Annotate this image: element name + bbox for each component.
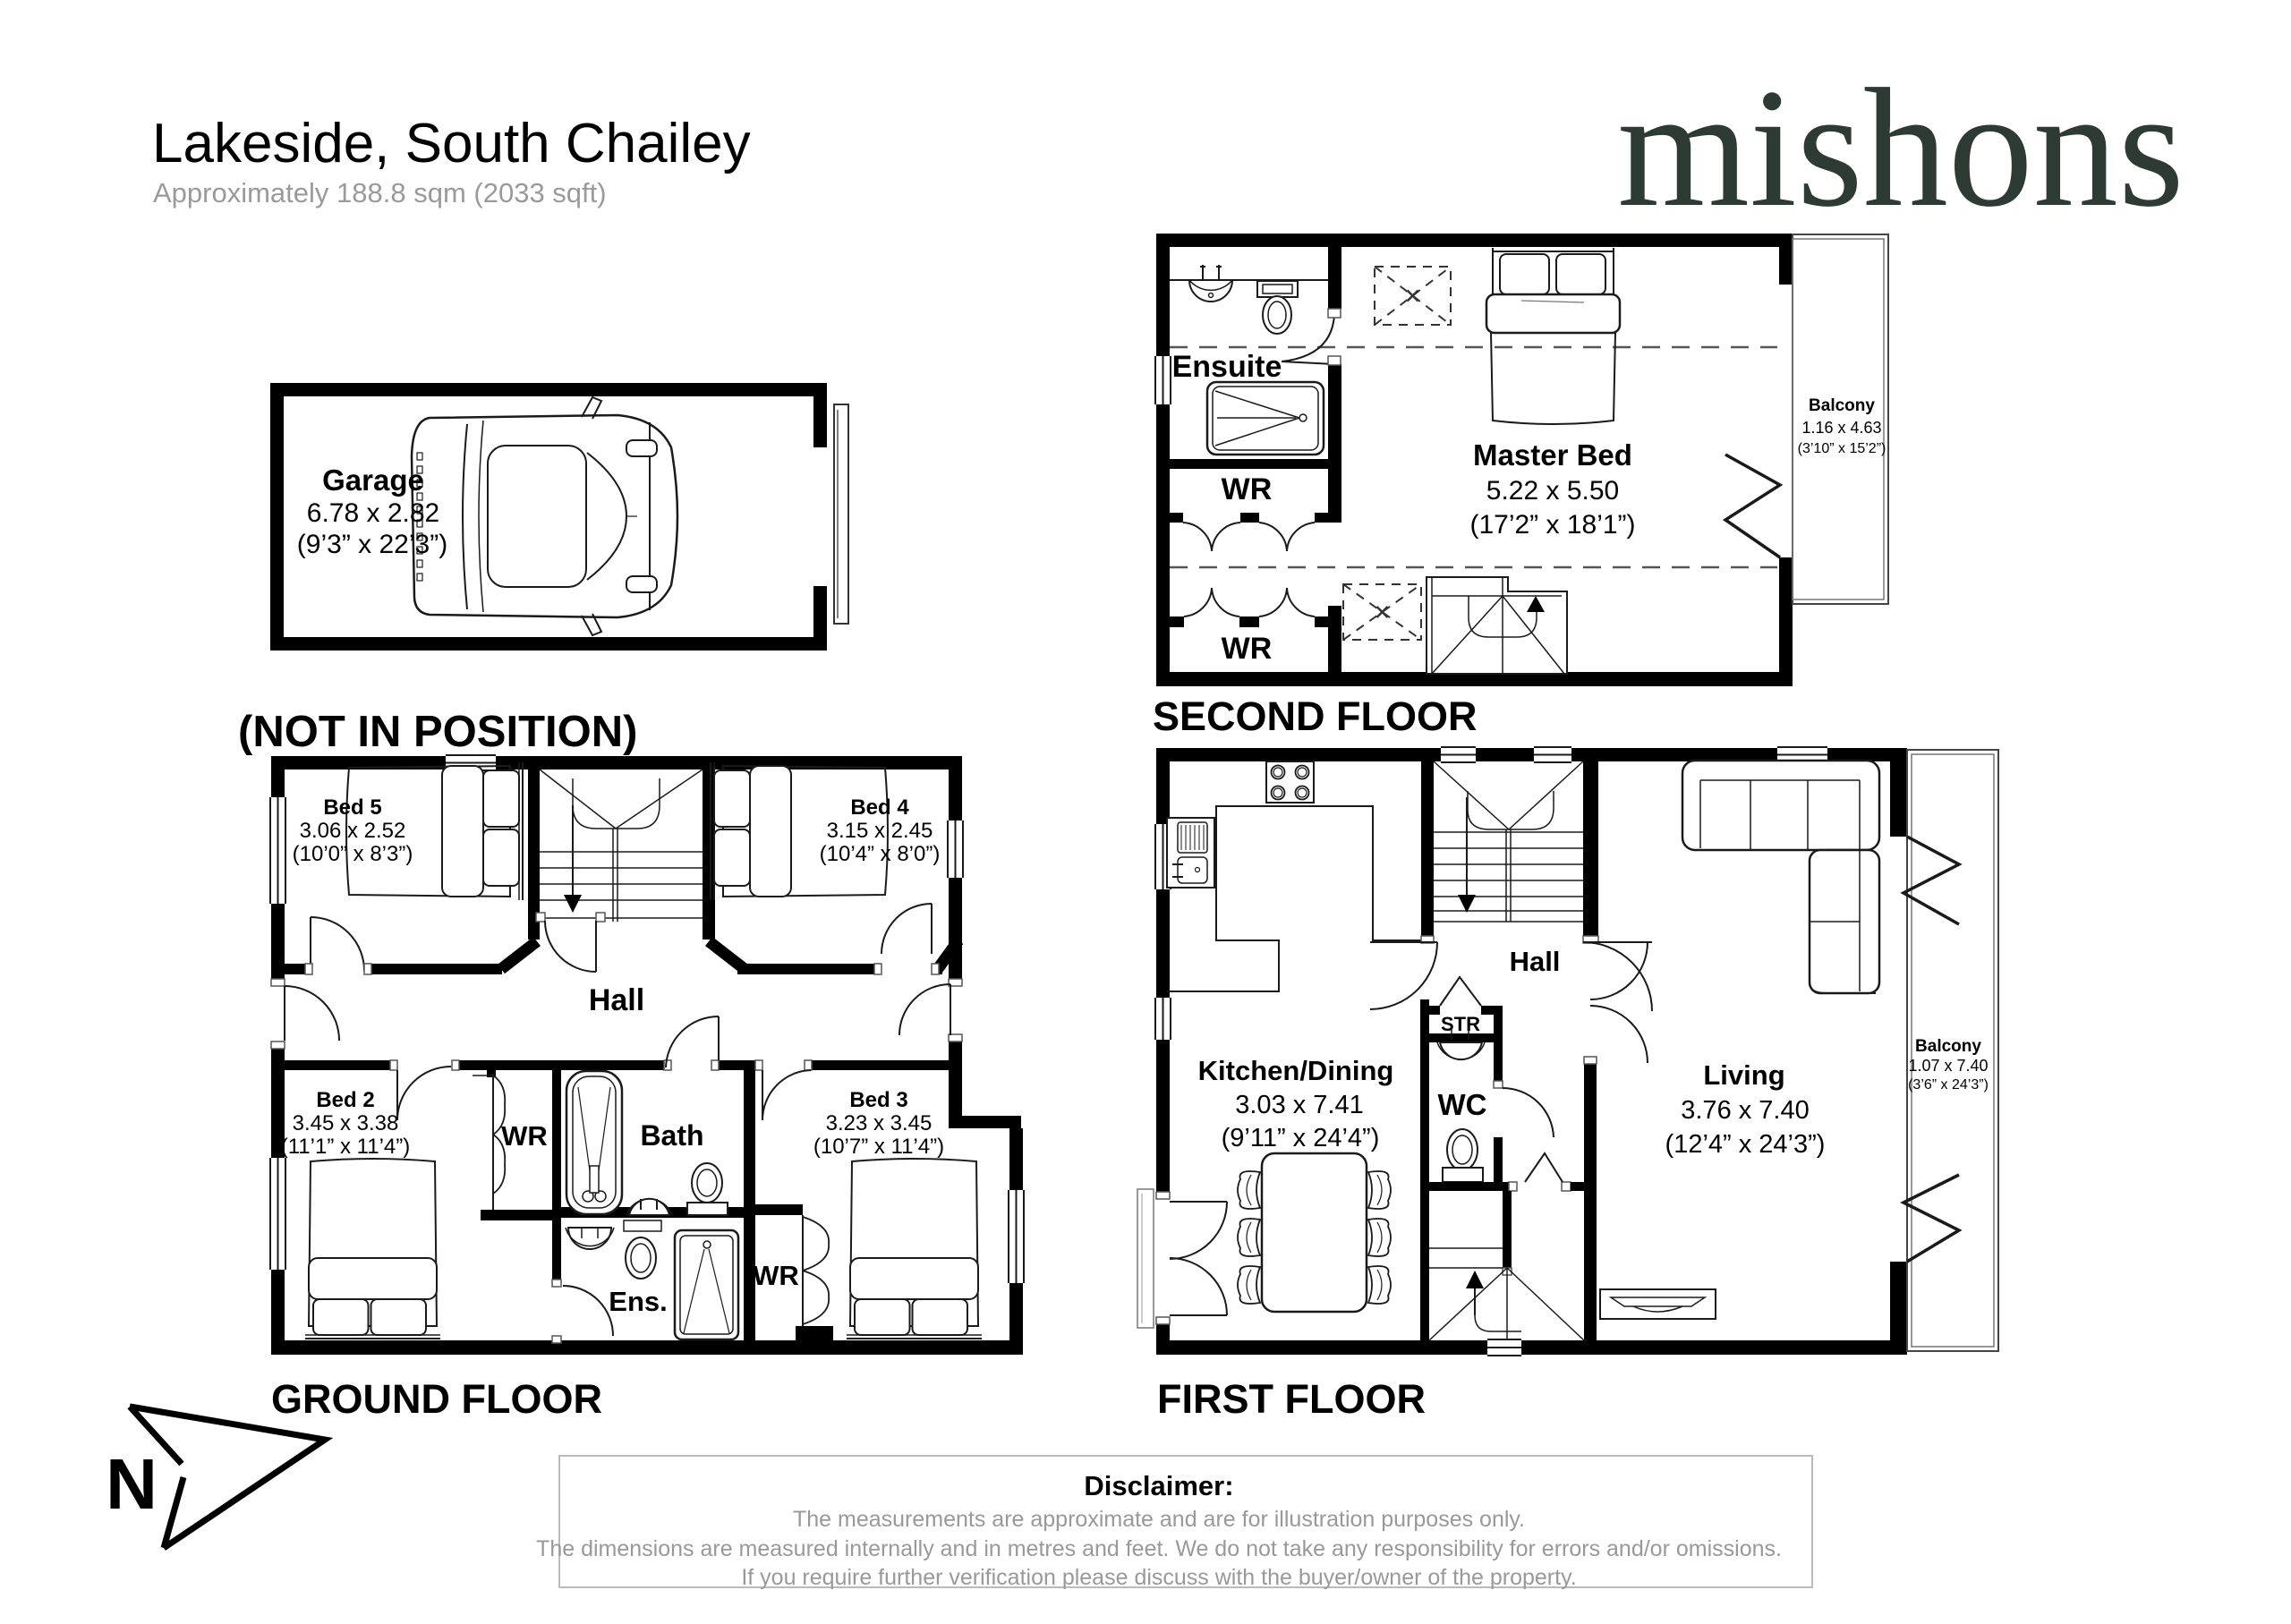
svg-text:6.78 x 2.82: 6.78 x 2.82 <box>307 498 439 528</box>
svg-text:Kitchen/Dining: Kitchen/Dining <box>1198 1055 1394 1086</box>
svg-text:(12’4” x 24’3”): (12’4” x 24’3”) <box>1665 1130 1826 1159</box>
svg-text:(10’4” x 8’0”): (10’4” x 8’0”) <box>820 842 941 866</box>
svg-text:FIRST FLOOR: FIRST FLOOR <box>1157 1376 1426 1422</box>
svg-text:WR: WR <box>1222 632 1273 666</box>
svg-text:3.06 x 2.52: 3.06 x 2.52 <box>300 819 406 843</box>
svg-text:Hall: Hall <box>589 983 644 1017</box>
svg-text:WR: WR <box>501 1120 548 1152</box>
svg-text:(10’7” x 11’4”): (10’7” x 11’4”) <box>813 1135 944 1159</box>
svg-text:If you require further verific: If you require further verification plea… <box>741 1565 1576 1590</box>
svg-text:(10’0” x 8’3”): (10’0” x 8’3”) <box>293 842 413 866</box>
svg-text:Bath: Bath <box>640 1119 703 1152</box>
svg-text:Bed 4: Bed 4 <box>850 795 909 820</box>
svg-text:STR: STR <box>1441 1013 1480 1035</box>
svg-text:5.22 x 5.50: 5.22 x 5.50 <box>1486 476 1619 506</box>
svg-text:3.23 x 3.45: 3.23 x 3.45 <box>826 1111 933 1135</box>
svg-text:(11’1” x 11’4”): (11’1” x 11’4”) <box>281 1135 411 1159</box>
svg-text:3.76 x 7.40: 3.76 x 7.40 <box>1681 1096 1810 1125</box>
svg-text:Bed 2: Bed 2 <box>316 1088 374 1112</box>
svg-text:Bed 3: Bed 3 <box>849 1088 907 1112</box>
svg-text:1.16 x 4.63: 1.16 x 4.63 <box>1801 419 1881 437</box>
svg-text:GROUND FLOOR: GROUND FLOOR <box>271 1376 602 1422</box>
svg-text:WR: WR <box>753 1260 799 1291</box>
svg-text:Approximately 188.8 sqm (2033: Approximately 188.8 sqm (2033 sqft) <box>153 177 607 208</box>
svg-text:N: N <box>106 1444 158 1524</box>
svg-text:3.45 x 3.38: 3.45 x 3.38 <box>293 1111 399 1135</box>
svg-text:Balcony: Balcony <box>1809 396 1875 415</box>
svg-text:The measurements are approxima: The measurements are approximate and are… <box>793 1507 1525 1532</box>
svg-text:SECOND FLOOR: SECOND FLOOR <box>1153 693 1478 739</box>
svg-text:Hall: Hall <box>1510 946 1561 977</box>
svg-text:The dimensions are measured in: The dimensions are measured internally a… <box>536 1536 1782 1561</box>
svg-text:WR: WR <box>1222 472 1273 506</box>
svg-text:3.03 x 7.41: 3.03 x 7.41 <box>1235 1091 1364 1119</box>
svg-text:WC: WC <box>1438 1088 1487 1121</box>
svg-text:mishons: mishons <box>1617 55 2184 242</box>
svg-text:Balcony: Balcony <box>1915 1037 1981 1056</box>
svg-text:Disclaimer:: Disclaimer: <box>1084 1470 1233 1501</box>
svg-text:1.07 x 7.40: 1.07 x 7.40 <box>1908 1057 1988 1075</box>
svg-text:(9’3” x 22’3”): (9’3” x 22’3”) <box>297 530 447 559</box>
svg-text:(3’10” x 15’2”): (3’10” x 15’2”) <box>1798 441 1886 456</box>
svg-text:Living: Living <box>1703 1059 1784 1091</box>
svg-text:(3’6” x 24’3”): (3’6” x 24’3”) <box>1908 1077 1989 1093</box>
svg-text:(9’11” x 24’4”): (9’11” x 24’4”) <box>1222 1124 1380 1152</box>
svg-text:(NOT IN POSITION): (NOT IN POSITION) <box>238 708 637 756</box>
svg-text:(17’2” x 18’1”): (17’2” x 18’1”) <box>1469 510 1635 540</box>
svg-text:Master Bed: Master Bed <box>1473 438 1632 472</box>
svg-text:Lakeside, South Chailey: Lakeside, South Chailey <box>152 113 751 174</box>
svg-text:3.15 x 2.45: 3.15 x 2.45 <box>827 819 933 843</box>
svg-text:Bed 5: Bed 5 <box>323 795 381 820</box>
svg-text:Garage: Garage <box>322 463 424 497</box>
svg-text:Ensuite: Ensuite <box>1172 350 1282 384</box>
svg-text:Ens.: Ens. <box>609 1286 667 1317</box>
